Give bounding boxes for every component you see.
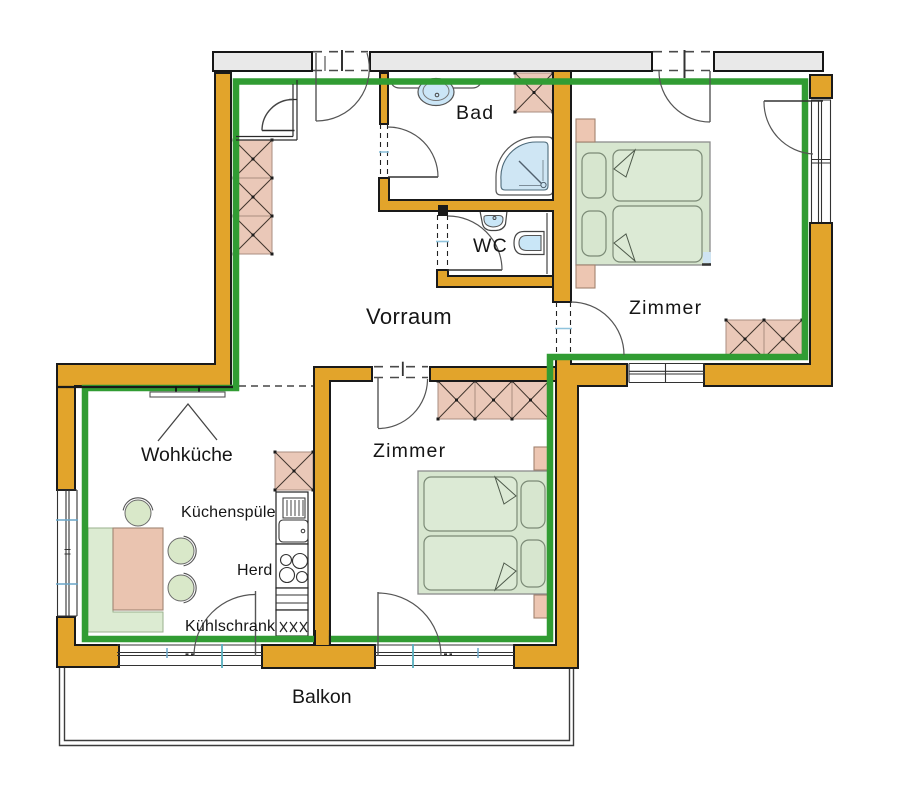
svg-text:Zimmer: Zimmer: [373, 440, 446, 462]
svg-text:Herd: Herd: [237, 562, 272, 579]
svg-text:Küchenspüle: Küchenspüle: [181, 504, 276, 521]
svg-text:Kühlschrank: Kühlschrank: [185, 618, 276, 635]
svg-text:Balkon: Balkon: [292, 686, 352, 708]
svg-text:Zimmer: Zimmer: [629, 297, 702, 319]
svg-text:WC: WC: [473, 235, 508, 257]
svg-text:Wohküche: Wohküche: [141, 444, 233, 466]
svg-text:Bad: Bad: [456, 102, 494, 124]
svg-text:Vorraum: Vorraum: [366, 304, 452, 329]
